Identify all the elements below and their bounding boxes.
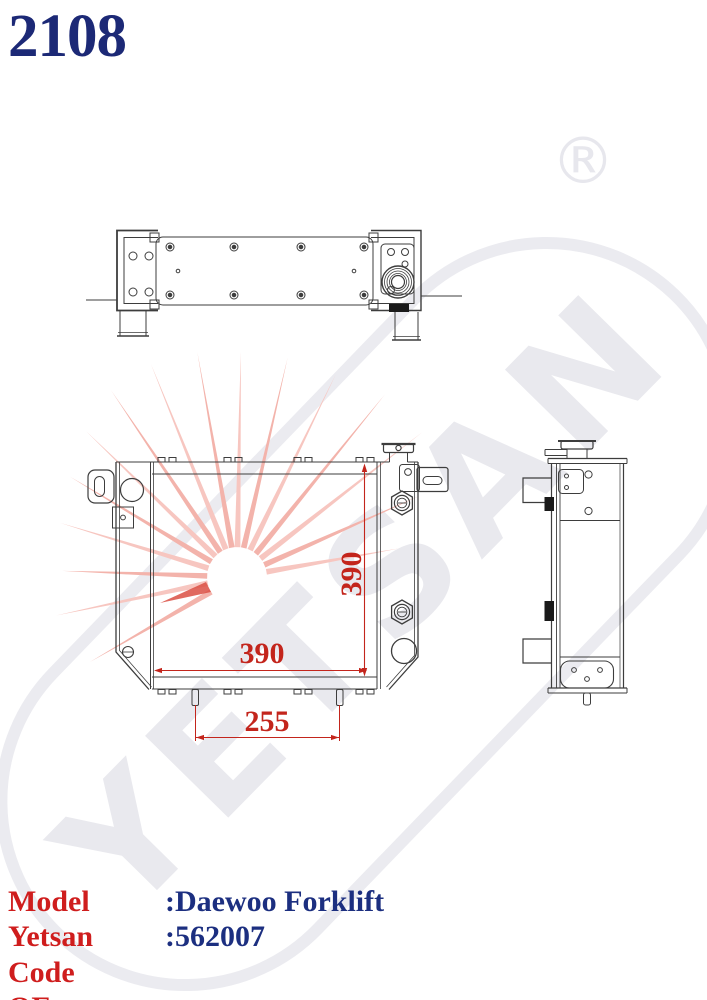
filler-cap [382,444,416,462]
dimension-annotations: 390 390 255 [154,464,368,742]
side-view-black-fitting-upper [545,497,555,511]
left-mounting-stud [192,690,199,706]
lower-hex-fitting [392,600,413,624]
spec-separator: : [165,884,175,919]
spec-separator: : [165,990,175,1000]
spec-row-yetsan-code: Yetsan Code : 562007 [8,919,384,990]
top-view-black-fitting [389,304,409,312]
front-view-bottom-tabs [158,690,374,695]
spec-label: OE [8,990,165,1000]
spec-separator: : [165,919,175,990]
catalog-page: YETSAN ® [0,0,707,1000]
upper-hex-fitting [392,491,413,515]
side-view-drawing [523,441,627,705]
outlet-hole [392,639,417,664]
spec-value: Daewoo Forklift [175,884,384,919]
side-view-bottom-plate [561,661,614,688]
spec-value: 562007 [175,919,265,990]
dimension-core-height: 390 [335,552,368,597]
spec-label: Yetsan Code [8,919,165,990]
top-view-drawing [86,231,462,341]
inlet-hole [121,479,144,502]
front-view-left-mount-bracket [88,470,134,528]
front-view-left-tank [116,462,154,690]
side-view-filler-cap [545,441,596,459]
filler-neck-top [382,266,414,298]
side-view-lower-bracket [523,639,552,663]
side-view-top-plate [559,470,593,515]
technical-drawing: 390 390 255 [0,0,707,1000]
side-view-black-fitting-lower [545,601,555,621]
spec-row-oe: OE : [8,990,384,1000]
spec-row-model: Model : Daewoo Forklift [8,884,384,919]
side-view-pin [584,693,591,705]
front-view-right-mount-bracket [400,465,449,492]
top-view-bolt-holes [166,243,368,299]
top-view-right-leg [392,312,421,340]
front-view-top-tabs [158,458,374,463]
right-mounting-stud [337,690,344,706]
top-view-body [156,237,373,305]
page-code-number: 2108 [8,2,126,72]
top-view-left-leg [117,311,149,337]
dimension-core-width: 390 [240,637,285,670]
spec-table: Model : Daewoo Forklift Yetsan Code : 56… [8,884,384,1000]
dimension-stud-spacing: 255 [245,705,290,738]
spec-label: Model [8,884,165,919]
